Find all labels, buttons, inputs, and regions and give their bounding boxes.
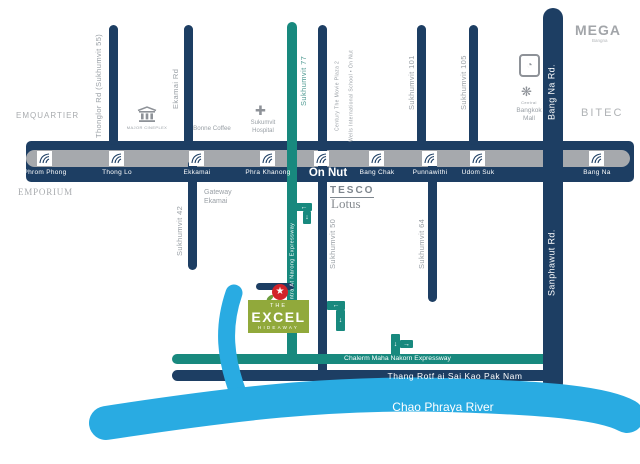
logo-hideaway: HIDEAWAY <box>248 325 309 330</box>
logo-excel: EXCEL <box>248 310 309 324</box>
emporium-logo: EMPORIUM <box>18 187 73 197</box>
station-thong-lo: Thong Lo <box>82 169 152 176</box>
bts-station-icon <box>37 151 52 166</box>
label-sukhumvit-64: Sukhumvit 64 <box>416 210 427 278</box>
central-label: Central <box>513 100 545 105</box>
bts-station-icon <box>314 151 329 166</box>
gateway-ekamai-label: Gateway Ekamai <box>204 188 254 206</box>
central-flower-icon: ❋ <box>521 84 532 100</box>
station-phrom-phong: Phrom Phong <box>10 169 80 176</box>
bts-station-icon <box>189 151 204 166</box>
bts-station-icon <box>589 151 604 166</box>
hospital-cross-icon: ✚ <box>255 103 266 119</box>
label-sukhumvit-101: Sukhumvit 101 <box>406 48 417 118</box>
label-thang-rotfai: Thang Rotf ai Sai Kao Pak Nam <box>355 371 555 381</box>
bangkok-mall-label: Bangkok Mall <box>510 107 548 123</box>
label-sukhumvit-50: Sukhumvit 50 <box>327 210 338 278</box>
bts-station-icon <box>109 151 124 166</box>
label-sukhumvit-77: Sukhumvit 77 <box>298 50 309 112</box>
river-main <box>106 395 627 423</box>
lotus-logo: Lotus <box>331 196 361 212</box>
station-bang-na: Bang Na <box>562 169 632 176</box>
mall-logo-icon: ◔ <box>519 54 540 77</box>
label-century-movie-plaza: Century The Movie Plaza 2 <box>332 52 343 140</box>
label-sukhumvit-42: Sukhumvit 42 <box>174 192 185 270</box>
bitec-label: BITEC <box>581 107 623 119</box>
label-chalerm-expressway: Chalerm Maha Nakorn Expressway <box>330 355 465 362</box>
major-cineplex-icon <box>136 106 158 124</box>
label-thonglor-rd: Thonglor Rd (Sukhumvit 55) <box>93 28 104 143</box>
bts-station-icon <box>260 151 275 166</box>
station-phra-khanong: Phra Khanong <box>233 169 303 176</box>
major-cineplex-label: MAJOR CINEPLEX <box>125 125 169 130</box>
river-label: Chao Phraya River <box>378 400 508 414</box>
label-ekamai-rd: Ekamai Rd <box>170 58 181 120</box>
station-udom-suk: Udom Suk <box>443 169 513 176</box>
label-sukhumvit-105: Sukhumvit 105 <box>458 48 469 118</box>
sukumvit-hospital-label: Sukumvit Hospital <box>239 120 287 136</box>
station-ekkamai: Ekkamai <box>162 169 232 176</box>
emquartier-logo: EMQUARTIER <box>16 111 79 120</box>
river-branch <box>227 293 242 403</box>
location-star-icon: ★ <box>272 284 288 300</box>
bts-station-icon <box>470 151 485 166</box>
label-wells-school: Wells International School • On Nut <box>346 52 357 140</box>
label-sanphawut-rd: Sanphawut Rd. <box>546 222 557 304</box>
the-excel-hideaway-logo: THE EXCEL HIDEAWAY <box>248 300 309 333</box>
mega-sublabel: Bangna <box>592 38 608 43</box>
bonne-coffee-label: Bonne Coffee <box>188 125 236 132</box>
location-map: Chao Phraya River Phrom Phong Thong Lo E… <box>0 0 640 464</box>
mega-logo: MEGA <box>575 22 621 38</box>
bts-station-icon <box>422 151 437 166</box>
bts-station-icon <box>369 151 384 166</box>
